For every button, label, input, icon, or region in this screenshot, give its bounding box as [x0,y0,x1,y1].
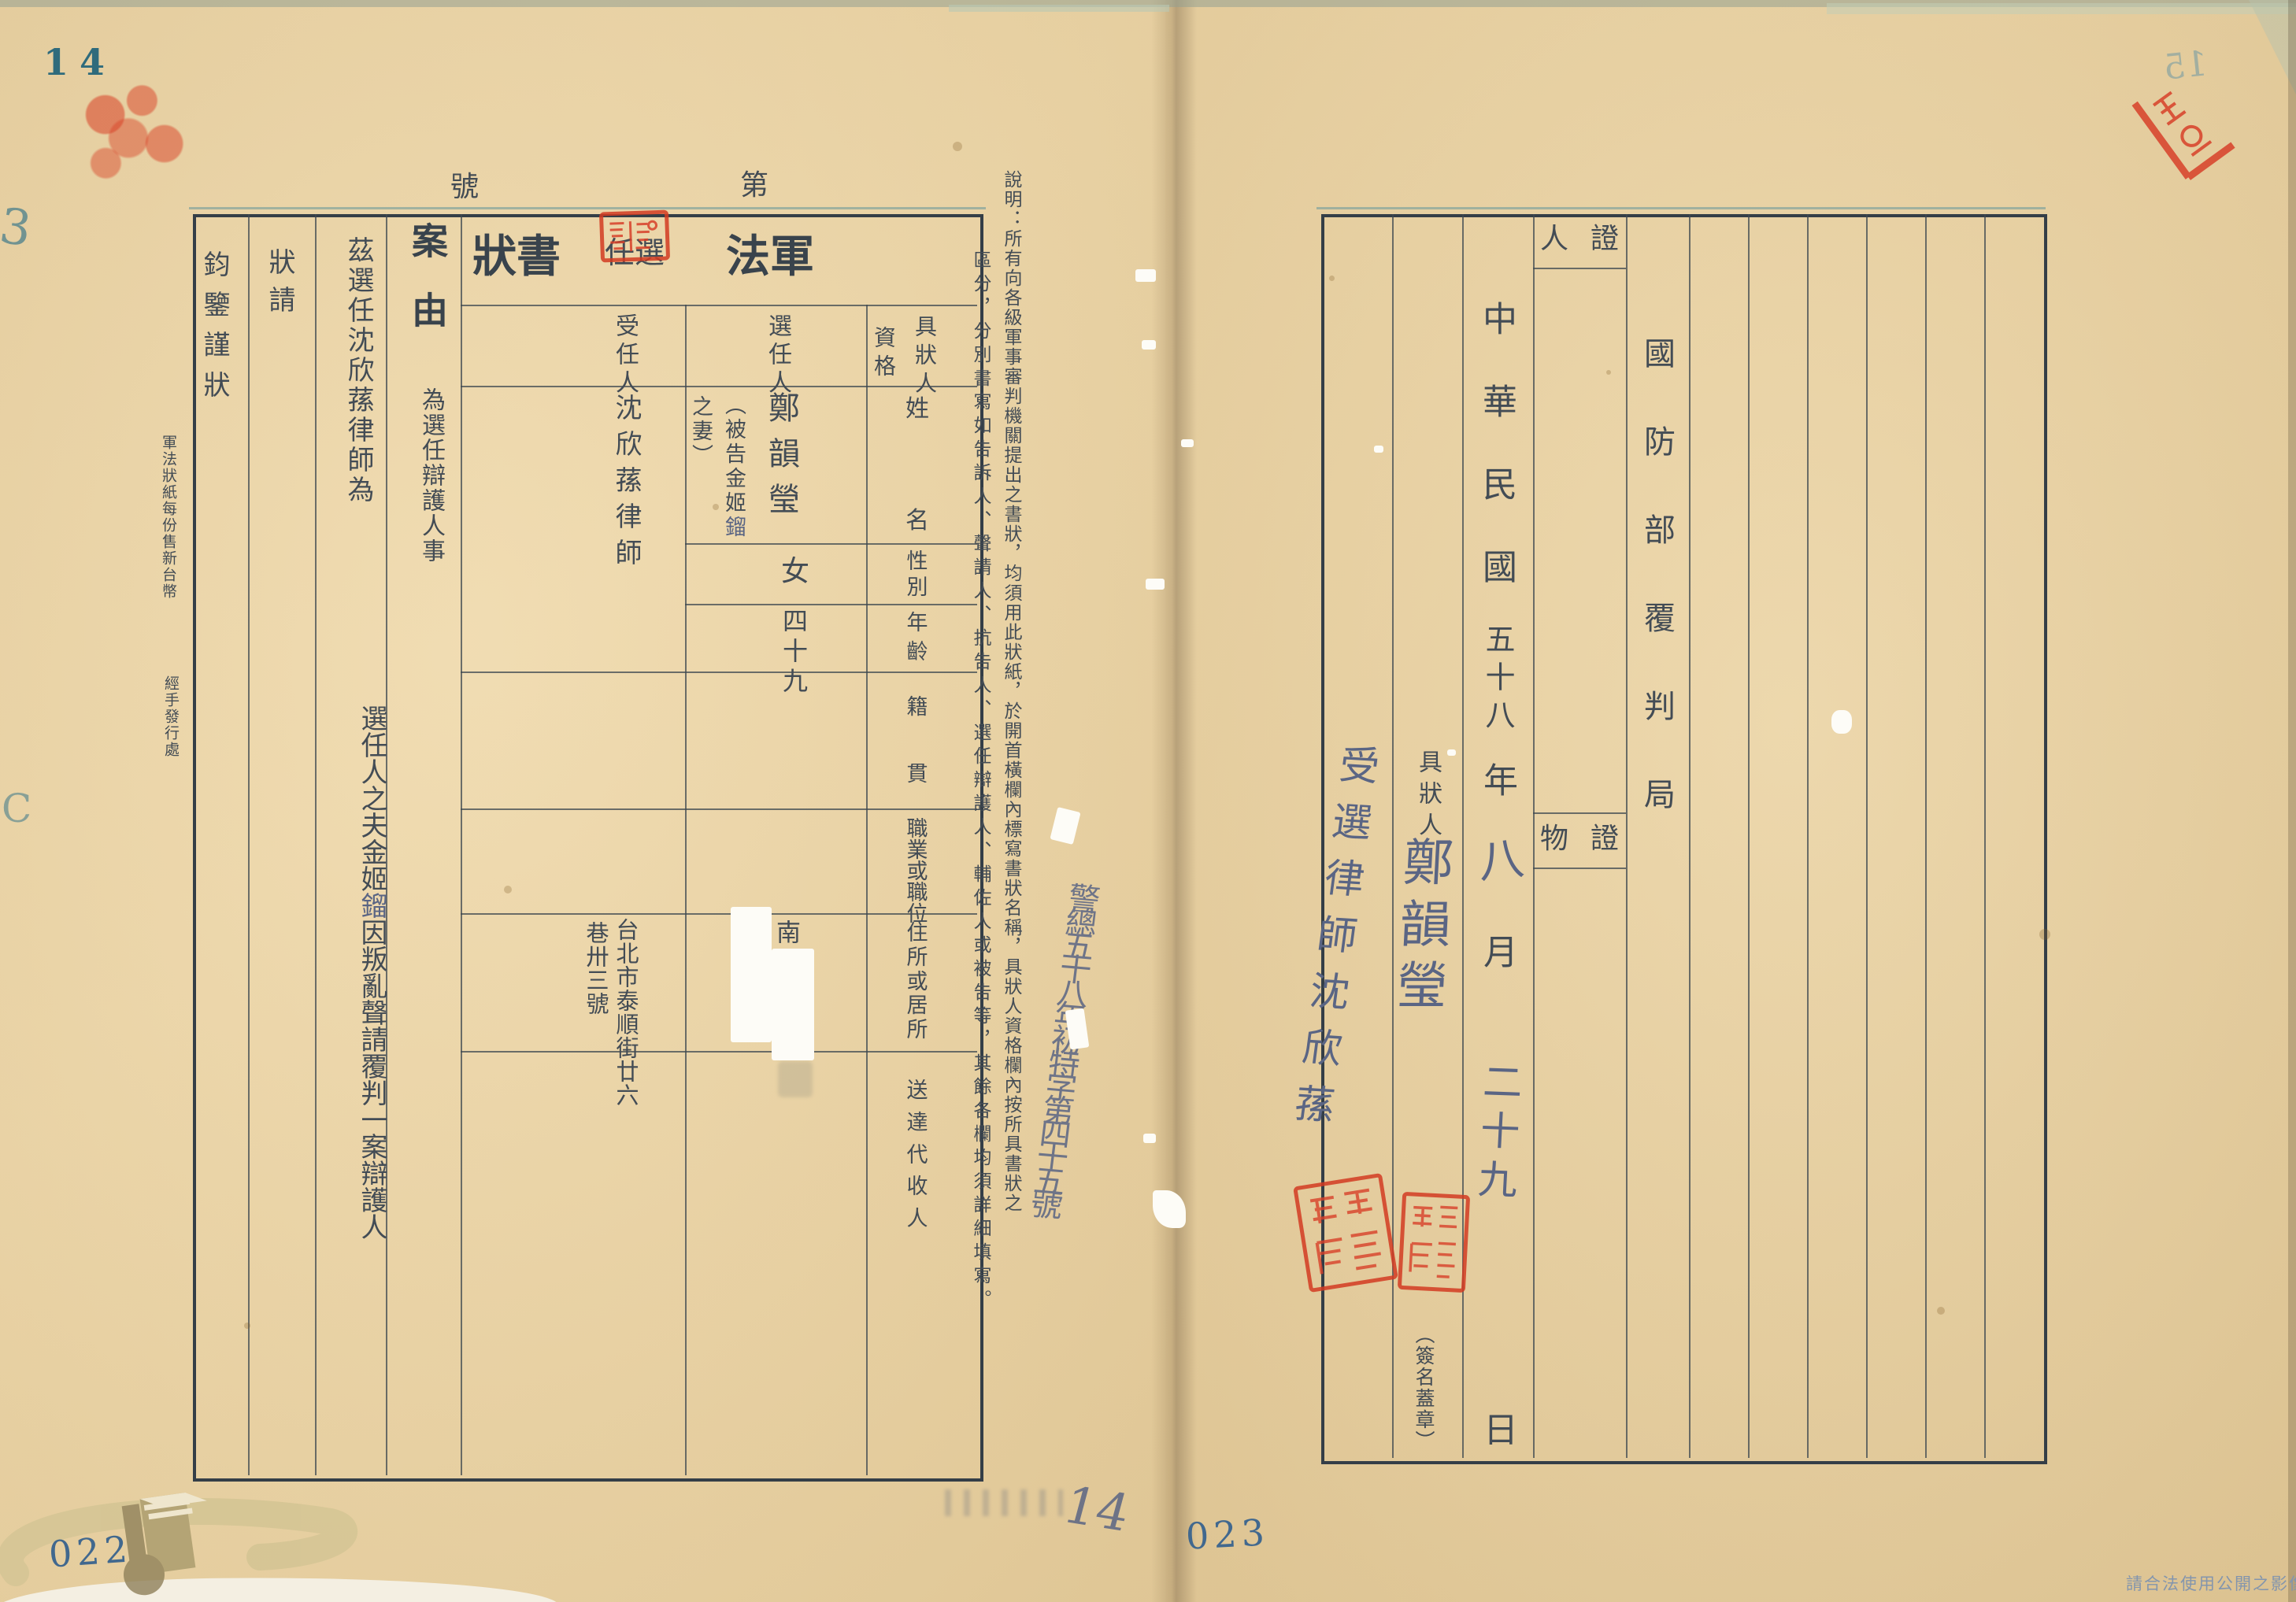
char: 或 [907,971,928,993]
char: 居 [907,995,928,1016]
handwritten-day: 二十九 [1473,1060,1520,1208]
signature-seal-note: （簽名蓋章） [1414,1324,1434,1452]
foxing-spot [1606,370,1611,375]
char: 貫 [907,764,928,785]
date-day-unit: 日 [1479,1411,1514,1446]
char: 收 [907,1176,928,1197]
instruction-note-col1: 說明：所有向各級軍事審判機關提出之書狀，均須用此狀紙，於開首橫欄內標寫書狀名稱，… [1002,170,1020,1213]
grid-line [1533,214,1535,1458]
char: 代 [907,1145,928,1166]
char: 或 [907,861,928,882]
signer-label: 具狀人 [1416,749,1439,844]
row-label-occupation: 職業或職位 [894,819,941,904]
paper-damage [1146,579,1165,590]
faint-stamp-remnant [945,1489,1063,1516]
foxing-spot [244,1323,250,1329]
foxing-spot [504,886,512,893]
row-label-origin: 籍貫 [894,697,941,785]
margin-price-note: 軍法狀紙每份售新台幣 [161,435,176,600]
char: 住 [907,923,928,944]
selector-age: 四十九 [781,608,806,697]
paper-damage [1831,710,1852,734]
char: 人 [1540,225,1568,253]
ruled-guide-line [189,207,986,209]
red-name-seal-icon [1398,1192,1470,1293]
body-text-2: 選任人之夫金姬鎦因叛亂聲請覆判一案辯護人 [358,705,385,1240]
red-registry-seal-icon [599,209,670,262]
redaction-patch [731,907,772,1042]
usage-notice: 請合法使用公開之影像 [2126,1576,2296,1593]
form-title-part1: 法軍 [726,235,844,279]
char: 職 [907,882,928,904]
char: 人 [907,1208,928,1230]
grid-line [1626,214,1628,1458]
archive-number-left: 022 [48,1530,134,1572]
grid-line [1533,812,1626,814]
witness-section-header: 人證 [1540,225,1619,253]
date-month-unit: 月 [1479,934,1514,968]
char: 年 [907,612,928,634]
char: 所 [907,1019,928,1041]
foxing-spot [953,142,962,151]
selector-name-note-1: （被告金姬鎦 [723,394,744,540]
grid-line [248,214,250,1475]
handwritten-month: 八 [1472,834,1522,884]
closing-text: 鈞鑒謹狀 [201,250,228,411]
body-text: 選任人之夫金姬 [356,705,387,892]
grid-line [685,543,977,545]
appointee-name: 沈欣蓀律師 [613,394,639,575]
selector-column-header: 選任人 [765,313,789,398]
grid-line [1807,214,1809,1458]
char: 名 [905,509,929,533]
char: 職 [907,819,928,840]
bleed-through-text [778,1061,813,1097]
selector-name: 鄭韻瑩 [765,391,797,528]
scan-edge [2288,0,2296,1602]
grid-line [461,214,462,1475]
grid-line [866,305,868,1475]
instruction-note-col2: 區分，分別書寫如告訴人、聲請人、抗告人、選任辯護人、輔佐人或被告等，其餘各欄均須… [971,250,989,1313]
char: 業 [907,840,928,861]
selector-name-note-2: 之妻） [690,395,711,468]
char: 籍 [907,697,928,718]
selector-sex: 女 [778,556,806,584]
char: 證 [1591,225,1619,253]
grid-line [1748,214,1750,1458]
left-form-border [193,214,983,1482]
foxing-spot [2039,929,2050,940]
foxing-spot [1937,1307,1945,1315]
pencil-page-number: 14 [1058,1480,1135,1539]
applicant-qualification-header2: 資格 [872,326,894,383]
scan-edge [1827,3,2296,14]
row-label-residence: 住所或居所 [894,923,941,1041]
grid-line [1866,214,1868,1458]
appointee-address-2: 巷卅三號 [584,921,607,1016]
grid-line [461,305,977,306]
paper-damage [1374,446,1383,453]
paper-damage [1143,1134,1156,1143]
paper-damage [1447,749,1456,756]
archive-page-number: 14 [43,44,116,80]
grid-line [685,305,687,1475]
char: 證 [1591,825,1619,853]
serial-prefix: 第 [740,172,768,200]
grid-line [315,214,317,1475]
note-text: （被告金姬 [721,394,746,516]
body-text: 因叛亂聲請覆判一案辯護人 [356,919,387,1240]
grid-line [1984,214,1986,1458]
paper-damage [1142,340,1156,350]
char: 物 [1540,825,1568,853]
petition-text: 狀請 [266,248,293,324]
grid-line [1533,268,1626,269]
row-label-name: 姓名 [894,398,941,533]
date-era: 中華民國 [1479,301,1513,631]
date-year: 五十八 [1483,623,1513,737]
redaction-patch [772,949,814,1060]
foxing-spot [713,504,719,510]
row-label-service-agent: 送達代收人 [894,1080,941,1230]
grid-line [461,913,977,915]
grid-line [461,808,977,810]
grid-line [1689,214,1691,1458]
red-name-seal-icon [1293,1173,1398,1293]
paper-damage [1135,269,1156,282]
grid-line [685,604,977,605]
scanned-document: 第 號 狀書 任選 法軍 具狀人 資格 選任人 受任人 姓名 性別 年齡 籍貫 … [0,0,2296,1602]
char: 姓 [905,398,929,421]
grid-line [1925,214,1927,1458]
handwritten-signer-name: 鄭韻瑩 [1391,836,1450,1021]
cause-label: 案由 [409,222,446,361]
appointee-column-header: 受任人 [613,313,636,398]
paper-damage [1181,439,1194,447]
grid-line [1533,868,1626,869]
grid-line [461,672,977,673]
char: 所 [907,947,928,968]
margin-issuer-note: 經手發行處 [163,675,178,758]
center-fold-shadow [1151,0,1197,1602]
row-label-sex: 性別 [894,551,941,598]
char: 送 [907,1080,928,1101]
archive-number-right: 023 [1185,1514,1270,1554]
applicant-qualification-header: 具狀人 [913,315,935,400]
grid-line [461,386,977,387]
cause-value: 為選任辯護人事 [419,387,443,564]
foxing-spot [1329,276,1335,281]
char: 別 [907,577,928,598]
agency-name: 國防部覆判局 [1641,337,1672,866]
edge-mark: C [2,789,31,828]
body-text-1: 茲選任沈欣蓀律師為 [345,236,372,505]
scan-edge [949,5,1169,12]
evidence-section-header: 物證 [1540,825,1619,853]
date-year-unit: 年 [1479,762,1514,797]
form-title-part2: 狀書 [472,235,591,279]
appointee-address-1: 台北市泰順街廿六 [614,918,637,1107]
ruled-guide-line [1316,207,2046,209]
grid-line [461,1051,977,1053]
char: 達 [907,1112,928,1134]
char: 齡 [907,642,928,663]
row-label-age: 年齡 [894,612,941,663]
handwritten-correction: 鎦 [356,892,387,919]
char: 性 [907,551,928,572]
serial-suffix: 號 [450,173,479,202]
handwritten-correction: 鎦 [721,516,746,540]
